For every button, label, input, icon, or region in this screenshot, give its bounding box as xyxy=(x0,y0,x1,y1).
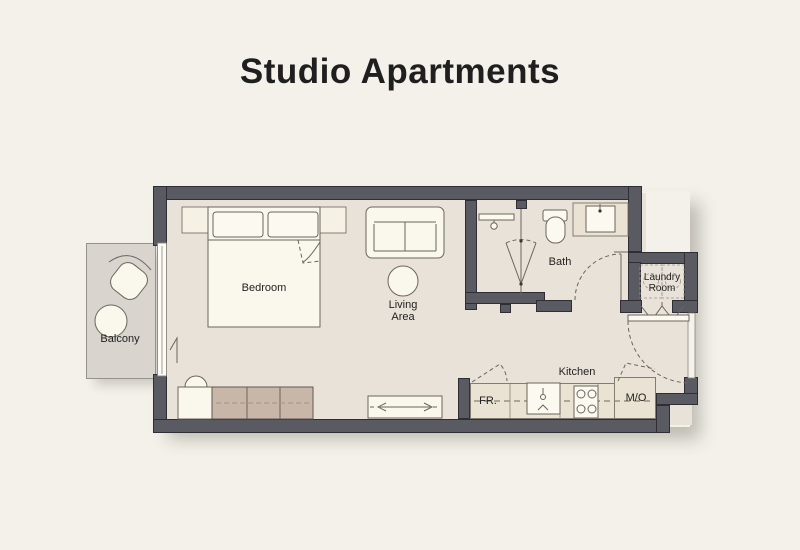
wall-entry-step-vertical xyxy=(656,405,670,433)
bath-label: Bath xyxy=(549,256,572,268)
floor-plan-canvas: Studio Apartments xyxy=(0,0,800,550)
kitchen-label: Kitchen xyxy=(559,366,596,378)
living-area-label-line2: Area xyxy=(391,311,414,323)
fridge-label: FR. xyxy=(479,395,497,407)
wall-bath-notch xyxy=(500,304,511,313)
balcony-floor xyxy=(86,243,156,379)
laundry-room-label-line2: Room xyxy=(649,283,676,294)
wall-shower-stub xyxy=(516,200,527,209)
living-area-label-line1: Living xyxy=(389,299,418,311)
wall-bath-bottom-a xyxy=(465,292,545,304)
wall-bottom xyxy=(153,419,670,433)
wall-kitchen-stub xyxy=(458,378,470,419)
wall-laundry-left xyxy=(628,262,641,302)
wall-laundry-stub-left xyxy=(620,300,642,313)
wall-entry-step xyxy=(656,393,698,405)
micro-oven-label: M/O xyxy=(626,392,647,404)
laundry-room-label-line1: Laundry xyxy=(644,272,680,283)
wall-laundry-stub-right xyxy=(672,300,698,313)
wall-left-upper xyxy=(153,186,167,246)
wall-top xyxy=(153,186,642,200)
page-title: Studio Apartments xyxy=(0,52,800,92)
wall-right-upper xyxy=(628,186,642,252)
balcony-label: Balcony xyxy=(100,333,139,345)
wall-bath-bottom-b xyxy=(536,300,572,312)
bedroom-label: Bedroom xyxy=(242,282,287,294)
